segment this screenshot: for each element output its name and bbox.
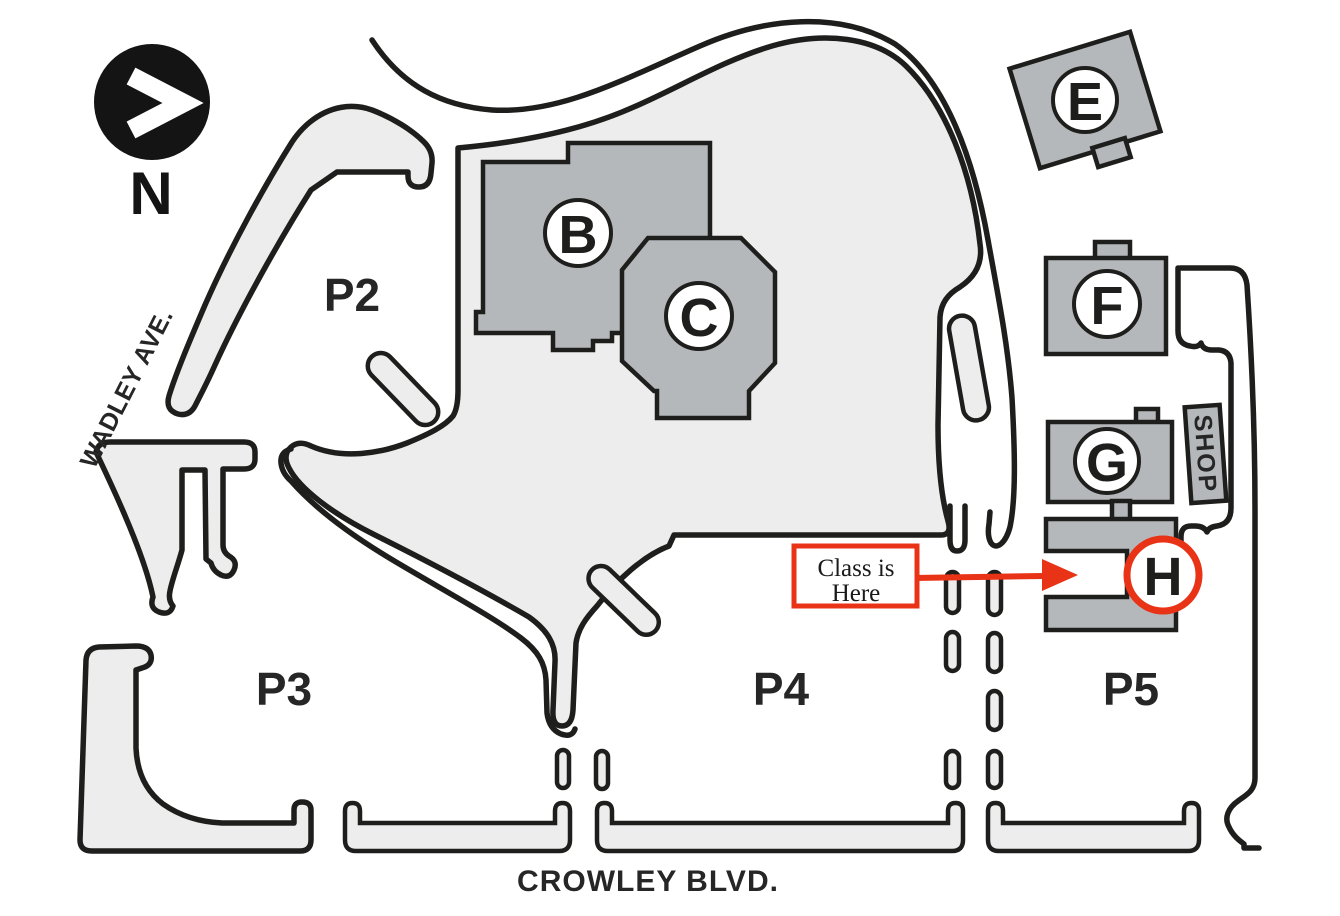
road-curb-tray-p5: [988, 803, 1199, 851]
lane-dash: [946, 751, 959, 788]
lane-dash: [988, 691, 1001, 730]
callout-arrow-line: [914, 576, 1043, 578]
road-curb-tray-p3: [345, 803, 570, 851]
building-c-label: C: [680, 288, 719, 348]
lane-dash: [557, 750, 569, 788]
callout-arrow-head: [1042, 559, 1078, 591]
building-g-badge: G: [1075, 429, 1139, 493]
parking-label-p4: P4: [753, 663, 810, 715]
median-island-p5-entrance: [947, 314, 991, 423]
building-h-label: H: [1144, 547, 1183, 607]
shop-label: SHOP: [1188, 414, 1221, 495]
building-b-badge: B: [545, 200, 611, 266]
median-island-p2: [362, 348, 443, 431]
campus-map: SHOP B C E F G H P2 P3 P4 P5 WADLEY AVE.…: [0, 0, 1340, 916]
lane-dash: [946, 632, 959, 671]
building-b-label: B: [559, 205, 598, 265]
parking-label-p5: P5: [1103, 663, 1159, 715]
building-g-label: G: [1086, 433, 1128, 493]
building-e-badge: E: [1053, 68, 1117, 132]
building-c-badge: C: [666, 283, 732, 349]
lane-dash: [988, 751, 1001, 788]
street-label-crowley: CROWLEY BLVD.: [517, 865, 779, 898]
building-e-label: E: [1067, 72, 1103, 132]
lane-dash: [596, 751, 608, 789]
callout-text-line1: Class is: [817, 555, 894, 582]
callout-text-line2: Here: [832, 580, 881, 607]
compass-label: N: [129, 160, 172, 227]
north-compass: N: [94, 44, 210, 227]
road-end-hairpin: [950, 506, 965, 551]
campus-map-svg: SHOP B C E F G H P2 P3 P4 P5 WADLEY AVE.…: [0, 0, 1340, 916]
building-h-badge: H: [1127, 539, 1199, 611]
parking-label-p2: P2: [324, 269, 380, 321]
lane-dash: [988, 633, 1001, 672]
callout-class-is-here: Class is Here: [794, 546, 1078, 607]
building-f-badge: F: [1074, 271, 1140, 337]
parking-label-p3: P3: [256, 663, 312, 715]
road-wedge-p2-p3: [96, 442, 255, 613]
building-f-label: F: [1091, 276, 1124, 336]
road-curb-tray-p4: [597, 803, 963, 851]
